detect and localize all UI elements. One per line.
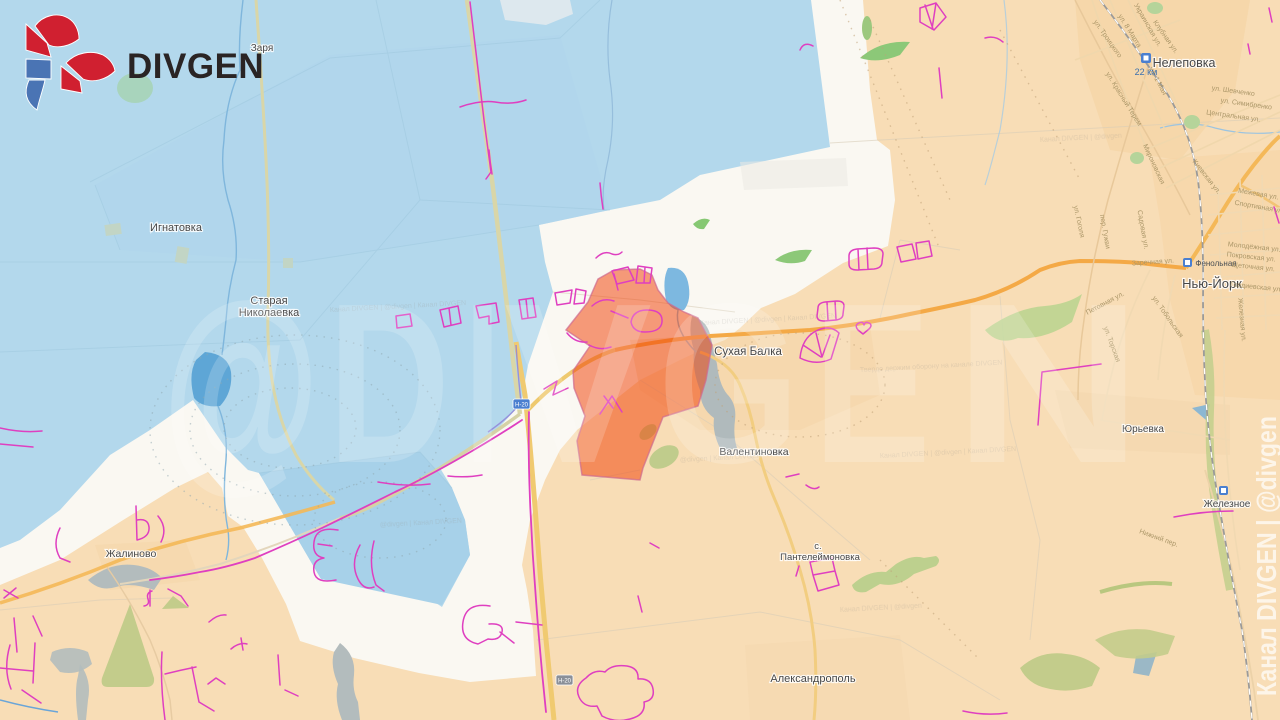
svg-text:Железное: Железное bbox=[1204, 499, 1251, 510]
svg-text:@: @ bbox=[162, 257, 320, 511]
svg-text:G: G bbox=[658, 257, 800, 511]
svg-text:V: V bbox=[504, 257, 652, 511]
svg-text:Александрополь: Александрополь bbox=[770, 673, 855, 685]
svg-text:N: N bbox=[953, 257, 1143, 511]
svg-text:DIVGEN: DIVGEN bbox=[127, 47, 264, 86]
svg-text:Жалиново: Жалиново bbox=[106, 548, 157, 560]
svg-text:I: I bbox=[465, 257, 500, 511]
svg-text:Нелеповка: Нелеповка bbox=[1153, 56, 1216, 70]
svg-text:E: E bbox=[813, 257, 931, 511]
svg-text:Н-20: Н-20 bbox=[558, 679, 572, 685]
svg-text:с.: с. bbox=[814, 541, 821, 552]
svg-text:Пантелеймоновка: Пантелеймоновка bbox=[780, 552, 860, 563]
svg-text:Игнатовка: Игнатовка bbox=[150, 222, 203, 234]
svg-text:D: D bbox=[328, 257, 450, 511]
svg-text:Канал DIVGEN | @divgen: Канал DIVGEN | @divgen bbox=[1251, 416, 1280, 696]
